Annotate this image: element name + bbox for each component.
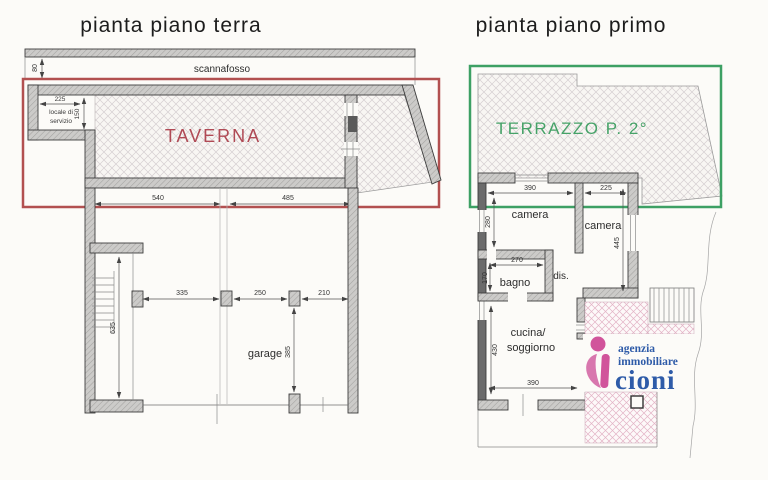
ground-floor-plan: pianta piano terra 80 scannafosso bbox=[23, 14, 441, 424]
floorplan-canvas: pianta piano terra 80 scannafosso bbox=[0, 0, 768, 480]
floorplan-page: pianta piano terra 80 scannafosso bbox=[0, 0, 768, 480]
logo-text-agenzia: agenzia bbox=[618, 343, 655, 355]
dim-225: 225 bbox=[600, 185, 612, 192]
dim-210: 210 bbox=[318, 290, 330, 297]
camera-left-label: camera bbox=[512, 209, 550, 221]
terrace-pillar bbox=[631, 396, 643, 408]
dim-445: 445 bbox=[614, 237, 621, 249]
dim-270: 270 bbox=[511, 257, 523, 264]
logo-text-cioni: cioni bbox=[615, 365, 676, 395]
dim-locale-width: 225 bbox=[55, 96, 66, 103]
taverna-floor-hatch bbox=[95, 88, 433, 193]
logo-person-head bbox=[591, 337, 606, 352]
garage-label: garage bbox=[248, 348, 282, 360]
taverna-label: TAVERNA bbox=[165, 126, 261, 146]
first-floor-title: pianta piano primo bbox=[476, 14, 667, 37]
dim-390-top: 390 bbox=[524, 185, 536, 192]
dim-540: 540 bbox=[152, 195, 164, 202]
dim-385: 385 bbox=[285, 346, 292, 358]
garage-pillars-dims: 335 250 210 385 bbox=[143, 290, 348, 413]
ground-floor-title: pianta piano terra bbox=[80, 14, 261, 37]
scannafosso-label: scannafosso bbox=[194, 64, 251, 75]
dim-locale-height: 150 bbox=[74, 108, 81, 119]
terrazzo-label: TERRAZZO P. 2° bbox=[496, 119, 648, 138]
first-floor-plan: pianta piano primo TERRAZZO P. 2° bbox=[470, 14, 722, 458]
dim-335: 335 bbox=[176, 290, 188, 297]
locale-label-line2: servizio bbox=[50, 118, 72, 125]
camera-right-label: camera bbox=[585, 220, 623, 232]
bagno-label: bagno bbox=[500, 277, 531, 289]
dim-250: 250 bbox=[254, 290, 266, 297]
dis-label: dis. bbox=[553, 271, 569, 282]
locale-label-line1: locale di bbox=[49, 109, 73, 116]
dim-scannafosso-depth: 80 bbox=[32, 64, 39, 72]
taverna-dim-row: 540 485 bbox=[95, 195, 350, 204]
locale-servizio-room: 225 locale di servizio 150 bbox=[40, 96, 84, 129]
dim-390-bottom: 390 bbox=[527, 380, 539, 387]
cucina-label-line2: soggiorno bbox=[507, 342, 555, 354]
first-floor-stairs bbox=[650, 288, 694, 322]
dim-635: 635 bbox=[110, 322, 117, 334]
dim-485: 485 bbox=[282, 195, 294, 202]
dim-170: 170 bbox=[482, 272, 489, 284]
ground-floor-stairs: 635 bbox=[92, 257, 119, 398]
cucina-label-line1: cucina/ bbox=[511, 327, 547, 339]
dim-430: 430 bbox=[492, 344, 499, 356]
dim-280: 280 bbox=[485, 216, 492, 228]
